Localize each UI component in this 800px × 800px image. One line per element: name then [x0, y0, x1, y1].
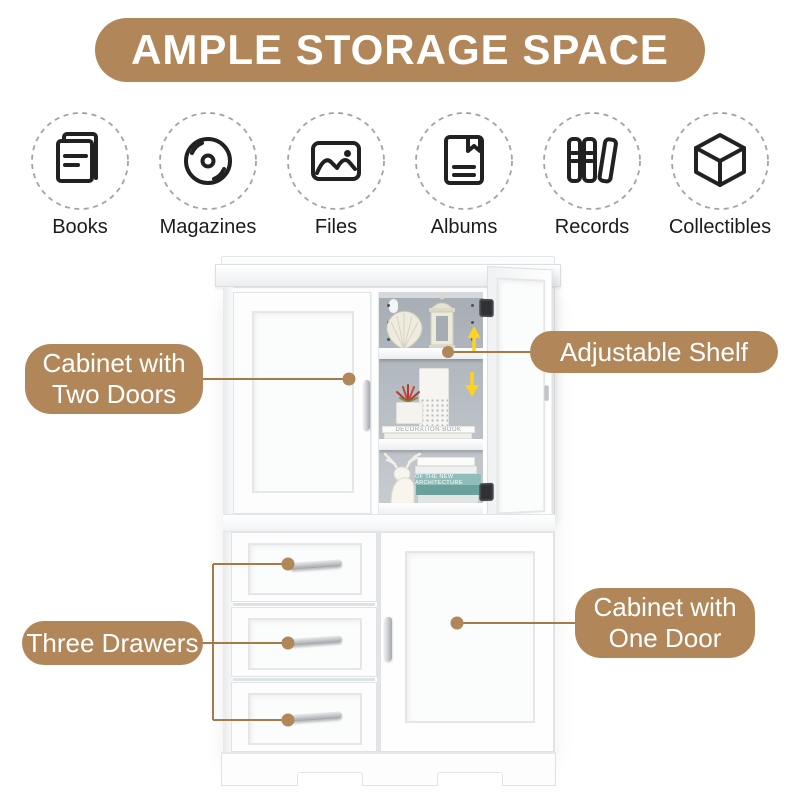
upper-door-handle — [364, 380, 370, 430]
open-door-knob — [544, 385, 549, 401]
open-compartment: DECORATION BOOK OF THE NEW ARCHITECTURE — [379, 292, 483, 516]
drawer-seam — [233, 678, 375, 681]
shell-decor — [382, 309, 427, 350]
callout-adjustable-shelf: Adjustable Shelf — [530, 331, 778, 373]
door-hinge-bottom — [479, 483, 493, 502]
decor-book-bottom: OF THE NEW ARCHITECTURE — [415, 474, 481, 485]
lower-door-handle — [385, 617, 392, 661]
book-stack — [416, 485, 480, 495]
book-stack — [417, 457, 475, 466]
product-infographic: AMPLE STORAGE SPACE Books — [0, 0, 800, 800]
plant-pot — [396, 402, 423, 424]
banner-title: AMPLE STORAGE SPACE — [131, 26, 669, 74]
lower-right-door — [380, 532, 554, 752]
open-door-panel — [497, 277, 546, 514]
mid-divider — [223, 514, 555, 532]
shelf-pin-holes — [387, 304, 390, 307]
upper-left-door — [233, 292, 371, 514]
decor-book-top: DECORATION BOOK — [382, 426, 475, 433]
callout-one-door: Cabinet with One Door — [575, 588, 755, 658]
plant-leaves — [391, 382, 425, 404]
drawer-seam — [233, 603, 375, 606]
center-stile — [371, 292, 379, 514]
callout-three-drawers: Three Drawers — [22, 621, 203, 665]
door-hinge-top — [479, 299, 493, 318]
lantern-decor — [423, 293, 461, 351]
callout-two-doors: Cabinet with Two Doors — [25, 344, 203, 414]
drawer-panel — [248, 543, 362, 595]
open-door — [487, 266, 552, 524]
banner: AMPLE STORAGE SPACE — [95, 18, 705, 82]
plinth-notch-left — [297, 772, 363, 786]
door-panel — [252, 311, 354, 493]
plinth-base — [221, 752, 556, 786]
lower-shelf-board — [379, 439, 483, 450]
book-stack — [418, 495, 478, 503]
adjustable-shelf-board — [379, 348, 483, 359]
plinth-notch-right — [437, 772, 503, 786]
door-panel — [405, 551, 535, 723]
book-stack — [415, 466, 477, 474]
